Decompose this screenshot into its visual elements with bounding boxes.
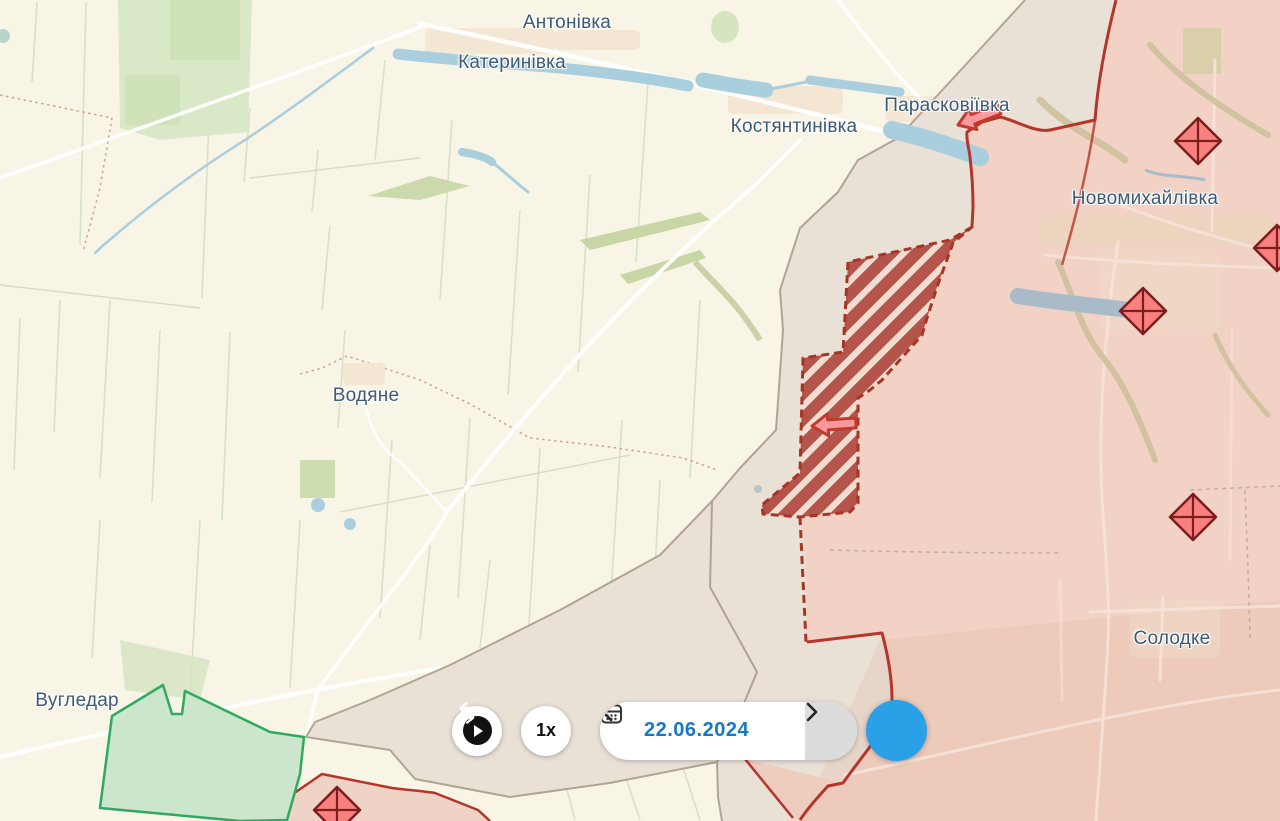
compare-layers-button[interactable] <box>866 700 927 761</box>
current-date[interactable]: 22.06.2024 <box>644 719 749 742</box>
calendar-button[interactable] <box>759 702 793 760</box>
calendar-icon <box>600 702 623 725</box>
small-pond <box>754 485 762 493</box>
chevron-right-icon <box>805 702 819 722</box>
next-day-button[interactable] <box>805 702 857 760</box>
map-canvas[interactable] <box>0 0 1280 821</box>
date-picker-pill: 22.06.2024 <box>600 702 857 760</box>
timeline-controls: 1x 22.06.2024 <box>452 700 927 761</box>
deepstate-map-app: АнтонівкаКатеринівкаКостянтинівкаПараско… <box>0 0 1280 821</box>
speed-button[interactable]: 1x <box>521 706 571 756</box>
swap-horizontal-icon <box>452 700 482 726</box>
